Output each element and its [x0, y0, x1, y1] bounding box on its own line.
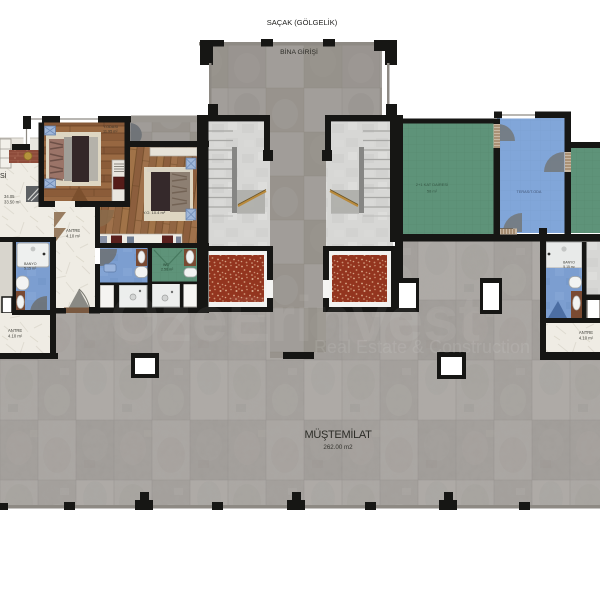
svg-text:BİNA GİRİŞİ: BİNA GİRİŞİ — [280, 47, 318, 56]
svg-text:4.10 m²: 4.10 m² — [66, 234, 81, 239]
svg-text:262.00 m2: 262.00 m2 — [323, 444, 353, 451]
svg-text:SAÇAK (GÖLGELİK): SAÇAK (GÖLGELİK) — [267, 18, 338, 27]
svg-text:58 m²: 58 m² — [427, 189, 438, 194]
svg-text:WC: WC — [163, 263, 169, 267]
svg-text:Y.O. 10.4 m²: Y.O. 10.4 m² — [143, 210, 166, 215]
svg-text:ANTRE: ANTRE — [66, 228, 80, 233]
svg-text:Y.ODASI: Y.ODASI — [103, 125, 118, 129]
svg-text:Sİ: Sİ — [0, 171, 7, 180]
svg-text:ANTRE: ANTRE — [8, 328, 22, 333]
svg-text:33.50 m²: 33.50 m² — [4, 200, 21, 205]
svg-text:2.50 m²: 2.50 m² — [161, 268, 174, 272]
svg-text:BANYO: BANYO — [24, 262, 37, 266]
svg-text:Real Estate & Construction: Real Estate & Construction — [314, 337, 530, 357]
svg-text:4.10 m²: 4.10 m² — [579, 336, 594, 341]
svg-text:2+1 KAT DAİRESİ: 2+1 KAT DAİRESİ — [416, 182, 448, 187]
svg-text:34.05: 34.05 — [4, 194, 15, 199]
svg-text:4.10 m²: 4.10 m² — [8, 334, 23, 339]
svg-text:ANTRE: ANTRE — [579, 330, 593, 335]
svg-text:TERAS/T.ODA: TERAS/T.ODA — [517, 190, 542, 194]
svg-text:MÜŞTEMİLAT: MÜŞTEMİLAT — [304, 428, 372, 441]
svg-text:11.95 m²: 11.95 m² — [103, 130, 118, 134]
svg-text:5.15 m²: 5.15 m² — [563, 265, 575, 269]
svg-text:5.15 m²: 5.15 m² — [24, 267, 37, 271]
